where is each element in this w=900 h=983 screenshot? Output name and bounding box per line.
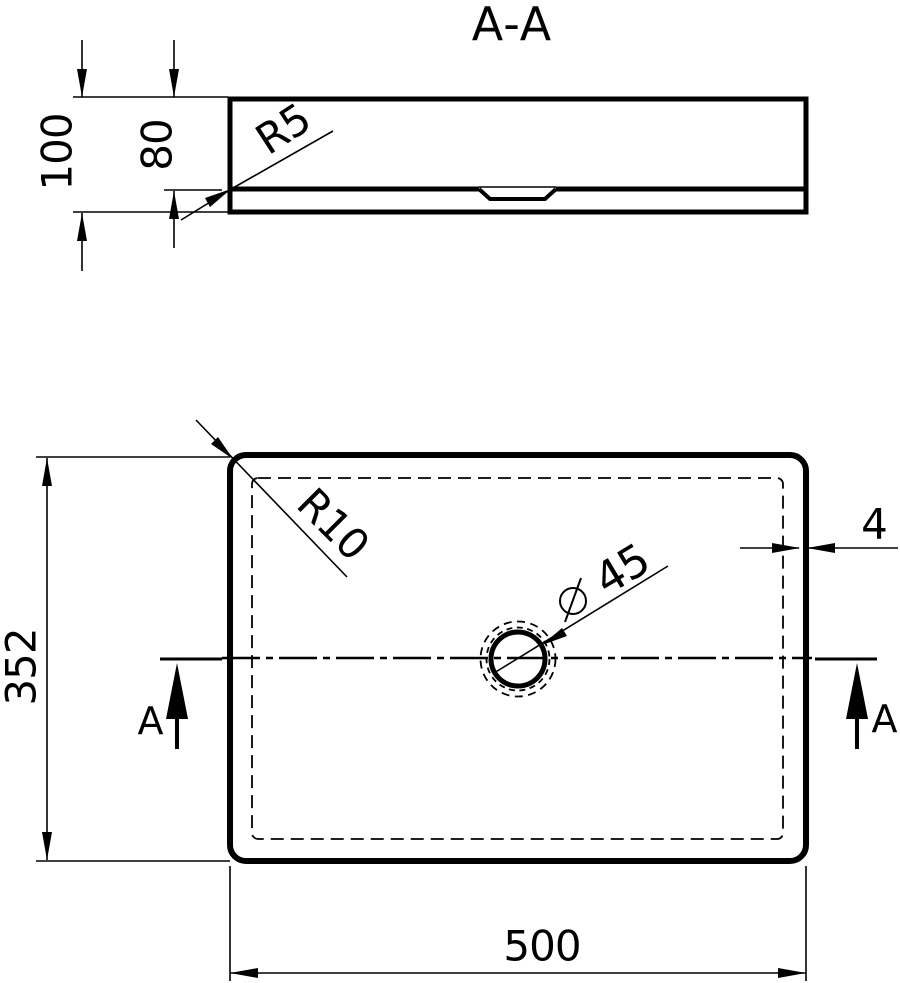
leader-arrowhead <box>205 189 231 207</box>
radius-label: R10 <box>288 479 379 570</box>
cut-label: A <box>872 697 898 741</box>
dimension-arrowhead <box>230 968 258 978</box>
dimension-arrowhead <box>807 543 835 553</box>
leader-radius-r5: R5 <box>181 94 333 220</box>
section-outline <box>230 99 806 212</box>
leader-arrowhead <box>542 628 567 645</box>
dimension-arrowhead <box>42 832 52 860</box>
radius-label: R5 <box>247 94 319 164</box>
dim-overall-width-500: 500 <box>230 866 806 981</box>
view-direction-arrow <box>166 663 188 719</box>
dim-wall-thickness-4: 4 <box>740 500 898 554</box>
dimension-arrowhead <box>77 213 87 241</box>
drain-diameter-value: 45 <box>586 534 659 606</box>
drain-recess-profile <box>479 189 556 199</box>
dim-value: 352 <box>0 628 46 705</box>
section-cut-marker-left: A <box>138 659 223 749</box>
plan-view: 45 R10 352 500 4 <box>0 420 898 981</box>
dim-value: 100 <box>33 113 82 190</box>
basin-section-body <box>230 99 806 212</box>
dim-value: 500 <box>503 922 580 971</box>
dimension-arrowhead <box>169 191 179 219</box>
section-view: A-A 100 80 R5 <box>33 0 807 271</box>
drawing-sheet: A-A 100 80 R5 <box>0 0 900 983</box>
dimension-arrowhead <box>778 968 806 978</box>
dimension-arrowhead <box>77 69 87 97</box>
technical-drawing-canvas: A-A 100 80 R5 <box>0 0 900 983</box>
dimension-arrowhead <box>42 458 52 486</box>
section-cut-marker-right: A <box>815 659 898 749</box>
dimension-arrowhead <box>169 69 179 97</box>
leader-line <box>181 131 333 220</box>
leader-radius-r10: R10 <box>196 420 378 577</box>
dim-overall-height-100: 100 <box>33 40 229 271</box>
diameter-symbol-icon <box>560 578 586 622</box>
leader-drain-diameter: 45 <box>494 534 668 673</box>
leader-arrowhead <box>211 437 233 459</box>
dim-value: 4 <box>861 500 887 549</box>
view-direction-arrow <box>846 663 868 719</box>
dim-value: 80 <box>133 119 182 170</box>
section-title: A-A <box>472 0 553 51</box>
dim-basin-depth-80: 80 <box>133 40 223 248</box>
dimension-arrowhead <box>772 543 800 553</box>
cut-label: A <box>138 699 164 743</box>
